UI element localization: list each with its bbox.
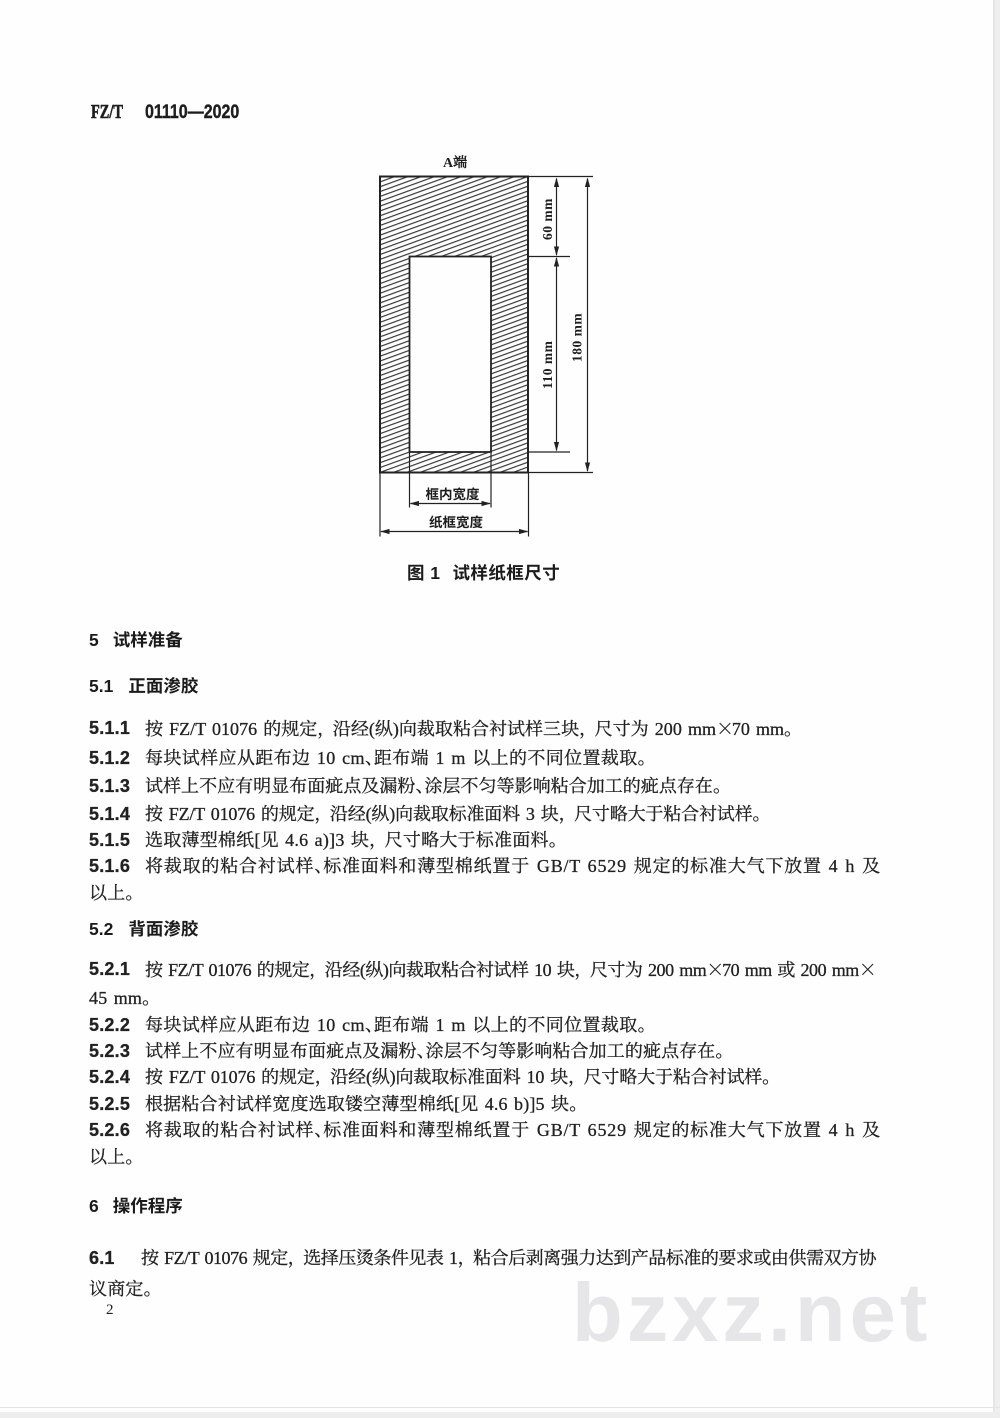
svg-text:110 mm: 110 mm [540, 340, 555, 389]
svg-text:框内宽度: 框内宽度 [426, 483, 480, 503]
svg-text:60 mm: 60 mm [540, 198, 555, 240]
svg-text:180 mm: 180 mm [570, 313, 585, 362]
svg-text:纸框宽度: 纸框宽度 [429, 511, 483, 531]
svg-text:A端: A端 [443, 155, 467, 171]
